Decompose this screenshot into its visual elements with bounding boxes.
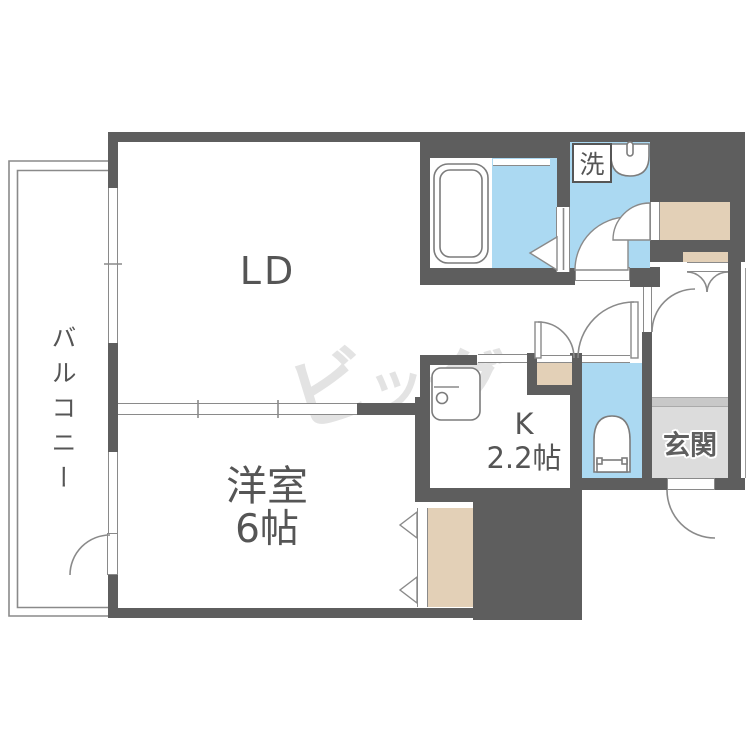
bathtub-inner-icon (440, 170, 482, 257)
closet-fold-triangle-icon (400, 512, 417, 538)
basin-faucet-icon (627, 142, 633, 156)
balcony-door-arc (70, 535, 110, 575)
room-label-western-room: 洋室 6帖 (226, 464, 308, 552)
room-label-entrance: 玄関 (663, 424, 717, 463)
fixtures-layer (0, 0, 750, 750)
kitchen-name: K (486, 407, 561, 441)
washing-machine-box: 洗 (572, 143, 612, 183)
floor-plan: ビ ッ グ (0, 0, 750, 750)
cabinet-door-arc (538, 322, 574, 358)
western-room-size: 6帖 (226, 509, 308, 552)
washer-label: 洗 (579, 145, 604, 181)
room-label-balcony: バルコニー (44, 325, 80, 500)
storage-door-arc (613, 203, 650, 240)
sink-drain-icon (437, 393, 448, 404)
closet-bifold-arc-right (707, 272, 728, 292)
entrance-door-arc (667, 490, 715, 538)
bath-door-triangle-icon (530, 237, 557, 270)
room-label-kitchen: K 2.2帖 (486, 407, 561, 475)
closet-fold-triangle-icon (400, 577, 417, 603)
hall-door-arc (652, 289, 695, 332)
room-label-ld: LD (240, 249, 296, 293)
western-room-name: 洋室 (226, 464, 308, 509)
toilet-detail (597, 458, 602, 464)
toilet-detail (622, 458, 627, 464)
cabinet-door-leaf (535, 322, 541, 358)
kitchen-size: 2.2帖 (486, 441, 561, 475)
toilet-door-leaf (631, 302, 638, 358)
toilet-door-arc (578, 302, 634, 358)
